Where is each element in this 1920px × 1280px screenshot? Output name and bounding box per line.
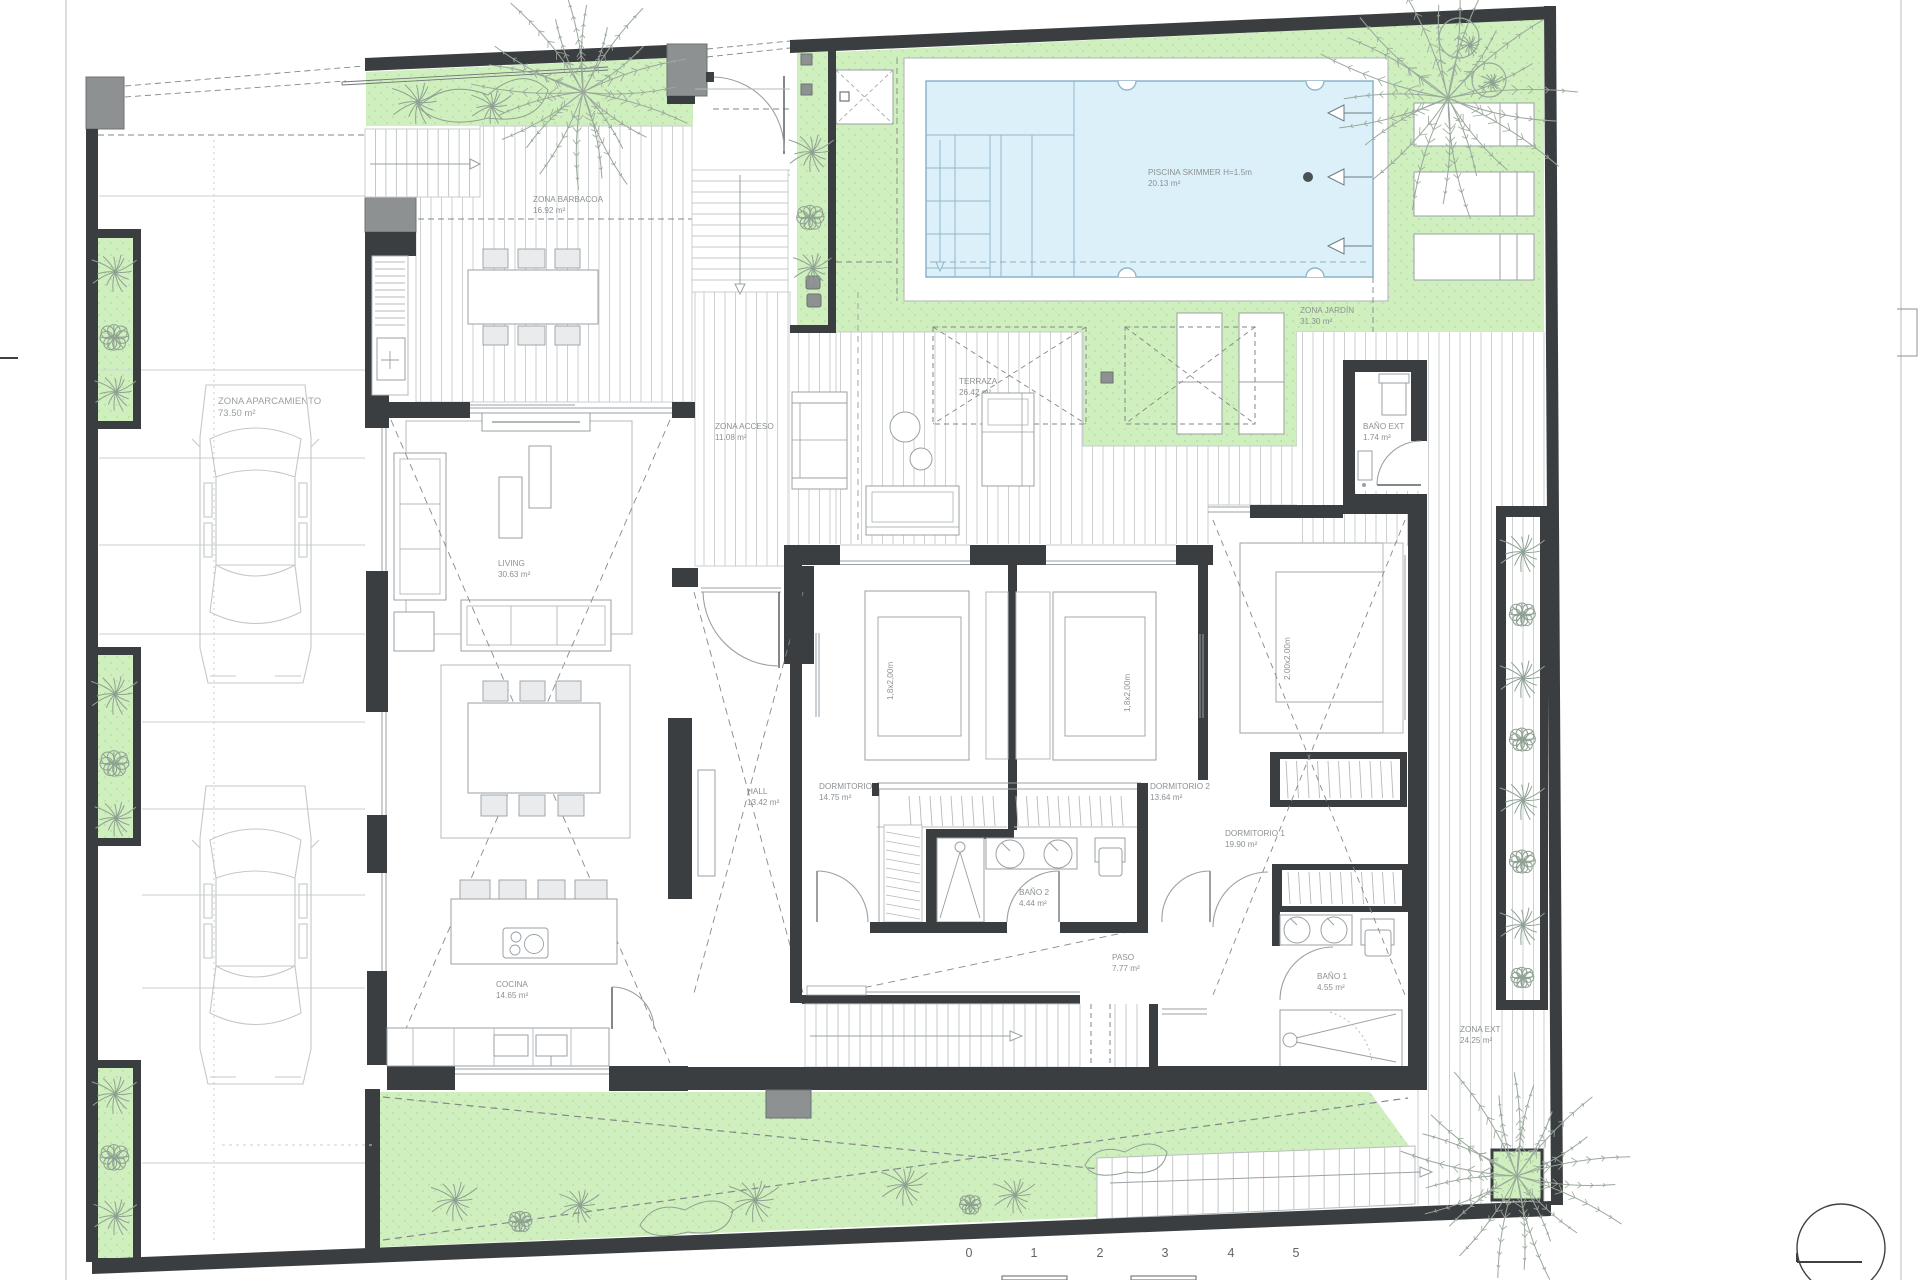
svg-text:DORMITORIO 2: DORMITORIO 2 bbox=[1150, 782, 1210, 791]
svg-text:2.00x2.00m: 2.00x2.00m bbox=[1283, 637, 1292, 680]
svg-text:1.74 m²: 1.74 m² bbox=[1363, 433, 1391, 442]
svg-text:1: 1 bbox=[1031, 1246, 1038, 1260]
svg-text:BAÑO EXT: BAÑO EXT bbox=[1363, 421, 1404, 431]
svg-text:BAÑO 1: BAÑO 1 bbox=[1317, 971, 1347, 981]
svg-text:4: 4 bbox=[1228, 1246, 1235, 1260]
svg-text:ZONA ACCESO: ZONA ACCESO bbox=[715, 422, 774, 431]
svg-text:HALL: HALL bbox=[747, 787, 768, 796]
svg-text:BAÑO 2: BAÑO 2 bbox=[1019, 887, 1049, 897]
svg-text:1,8x2,00m: 1,8x2,00m bbox=[1123, 674, 1132, 712]
svg-text:14.65 m²: 14.65 m² bbox=[496, 991, 529, 1000]
svg-text:TERRAZA: TERRAZA bbox=[959, 377, 998, 386]
svg-text:13.64 m²: 13.64 m² bbox=[1150, 793, 1183, 802]
svg-text:31.30 m²: 31.30 m² bbox=[1300, 317, 1333, 326]
svg-text:COCINA: COCINA bbox=[496, 980, 528, 989]
svg-text:19.90 m²: 19.90 m² bbox=[1225, 840, 1258, 849]
svg-text:14.75 m²: 14.75 m² bbox=[819, 793, 852, 802]
svg-text:73.50 m²: 73.50 m² bbox=[218, 408, 256, 419]
svg-text:DORMITORIO 3: DORMITORIO 3 bbox=[819, 782, 879, 791]
svg-text:DORMITORIO 1: DORMITORIO 1 bbox=[1225, 829, 1285, 838]
svg-text:ZONA APARCAMIENTO: ZONA APARCAMIENTO bbox=[218, 396, 321, 407]
svg-text:4.44 m²: 4.44 m² bbox=[1019, 899, 1047, 908]
svg-text:2: 2 bbox=[1097, 1246, 1104, 1260]
svg-text:11.08 m²: 11.08 m² bbox=[715, 433, 747, 442]
svg-text:30.63 m²: 30.63 m² bbox=[498, 570, 531, 579]
svg-text:3: 3 bbox=[1162, 1246, 1169, 1260]
svg-text:0: 0 bbox=[966, 1246, 973, 1260]
svg-text:ZONA JARDÍN: ZONA JARDÍN bbox=[1300, 305, 1354, 315]
svg-text:16.92 m²: 16.92 m² bbox=[533, 206, 566, 215]
svg-text:1,8x2,00m: 1,8x2,00m bbox=[886, 662, 895, 700]
svg-text:PISCINA SKIMMER H=1.5m: PISCINA SKIMMER H=1.5m bbox=[1148, 168, 1252, 177]
svg-text:ZONA BARBACOA: ZONA BARBACOA bbox=[533, 195, 604, 204]
svg-text:24.25 m²: 24.25 m² bbox=[1460, 1036, 1493, 1045]
svg-text:20.13 m²: 20.13 m² bbox=[1148, 179, 1181, 188]
svg-text:PASO: PASO bbox=[1112, 953, 1134, 962]
svg-text:5: 5 bbox=[1293, 1246, 1300, 1260]
svg-text:ZONA EXT: ZONA EXT bbox=[1460, 1025, 1501, 1034]
svg-text:7.77 m²: 7.77 m² bbox=[1112, 964, 1140, 973]
svg-text:4.55 m²: 4.55 m² bbox=[1317, 983, 1345, 992]
svg-text:LIVING: LIVING bbox=[498, 559, 525, 568]
